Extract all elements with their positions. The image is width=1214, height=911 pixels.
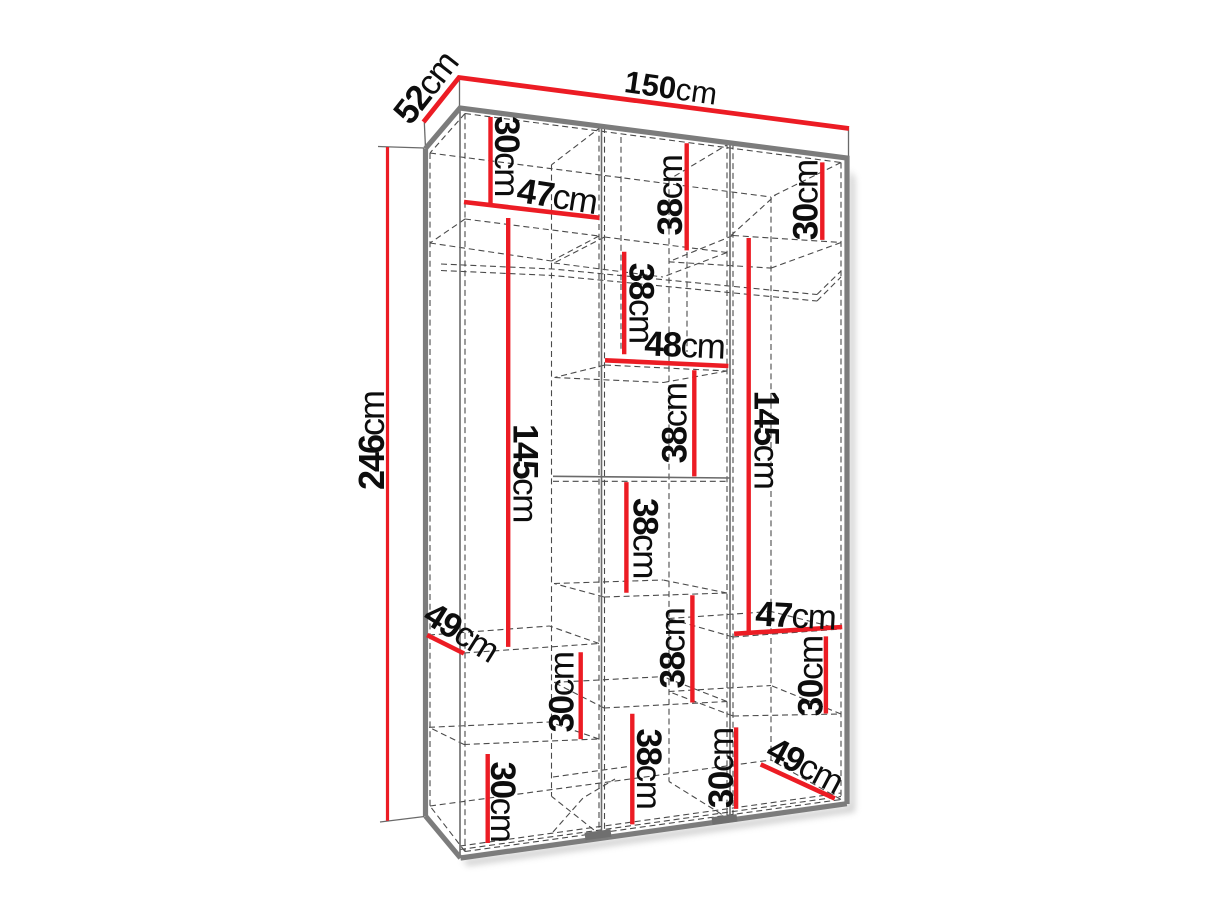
svg-text:30cm: 30cm <box>542 652 581 732</box>
svg-text:38cm: 38cm <box>626 498 665 578</box>
svg-text:38cm: 38cm <box>651 156 690 236</box>
svg-text:38cm: 38cm <box>630 729 669 809</box>
svg-text:30cm: 30cm <box>484 762 523 842</box>
svg-text:30cm: 30cm <box>791 636 830 716</box>
svg-text:30cm: 30cm <box>701 728 740 808</box>
svg-text:47cm: 47cm <box>755 594 837 637</box>
svg-text:145cm: 145cm <box>747 390 786 488</box>
svg-text:38cm: 38cm <box>655 383 694 463</box>
svg-text:246cm: 246cm <box>351 392 392 490</box>
svg-text:145cm: 145cm <box>506 424 545 522</box>
svg-text:48cm: 48cm <box>644 324 726 366</box>
svg-text:30cm: 30cm <box>786 160 825 240</box>
svg-text:38cm: 38cm <box>653 609 692 689</box>
